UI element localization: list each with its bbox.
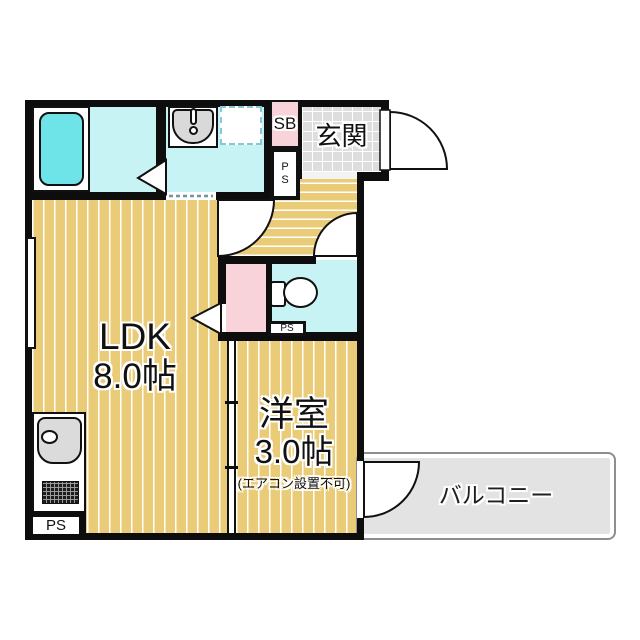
kitchen-ps-label: PS <box>46 517 66 534</box>
entrance-label: 玄関 <box>315 122 367 151</box>
kitchen-ps-labelbox: PS <box>33 517 79 534</box>
bathtub <box>39 112 84 186</box>
washing-machine-space <box>220 106 262 145</box>
entrance-door-arc <box>390 112 447 169</box>
toilet-ps-labelbox: PS <box>268 321 306 336</box>
bathroom-floor <box>90 106 166 192</box>
washbasin-faucet-dot <box>189 126 198 135</box>
entrance-step <box>296 172 357 179</box>
western-room-size: 3.0帖 <box>255 434 334 471</box>
washbasin-faucet <box>190 108 197 125</box>
floor-plan: SB PS PS PS L <box>0 0 640 640</box>
western-room-label-block: 洋室 3.0帖 (エアコン設置不可) <box>228 395 360 492</box>
ldk-name: LDK <box>99 316 171 357</box>
closet-floor <box>226 257 266 333</box>
toilet-bowl <box>283 277 318 308</box>
toilet-ps-label: PS <box>280 323 293 334</box>
kitchen-stove <box>42 481 79 504</box>
wall-entrance-right <box>381 100 389 181</box>
entrance-label-block: 玄関 <box>302 122 381 151</box>
shoe-box: SB <box>270 100 300 148</box>
window-left <box>26 237 36 349</box>
western-room-name: 洋室 <box>259 395 329 434</box>
kitchen-sink-hole <box>41 430 58 444</box>
wall-under-wet-area <box>25 192 270 200</box>
hallway-floor-upper <box>296 179 357 256</box>
wall-entrance-step <box>357 172 389 181</box>
western-room-note: (エアコン設置不可) <box>238 477 351 492</box>
balcony-label-block: バルコニー <box>376 452 616 540</box>
ldk-size: 8.0帖 <box>93 357 177 396</box>
wall-bath-divider <box>156 106 166 192</box>
balcony-label: バルコニー <box>439 483 554 509</box>
shoe-box-label: SB <box>272 102 298 146</box>
pipe-space-shaft-label: PS <box>279 161 291 187</box>
hallway-floor-lower <box>226 200 296 256</box>
ldk-label-block: LDK 8.0帖 <box>40 316 230 397</box>
pipe-space-shaft: PS <box>270 148 300 200</box>
